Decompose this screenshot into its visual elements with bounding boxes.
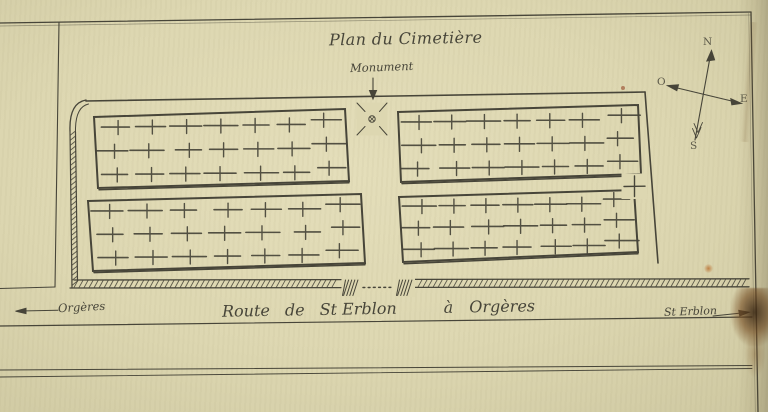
monument-label: Monument bbox=[350, 61, 414, 75]
monument-symbol bbox=[357, 103, 388, 136]
compass-north-label: N bbox=[703, 37, 712, 48]
compass-south-label: S bbox=[690, 141, 697, 152]
road-edge-line bbox=[0, 317, 752, 326]
entrance-gate bbox=[342, 279, 416, 298]
compass-rose bbox=[668, 51, 742, 141]
road-word: à bbox=[444, 300, 454, 316]
road-word: Route bbox=[222, 303, 270, 320]
right-destination-label: St Erblon bbox=[664, 305, 717, 318]
orgeres-arrow bbox=[16, 308, 59, 313]
left-destination-label: Orgères bbox=[58, 301, 106, 315]
compass-east-label: E bbox=[740, 94, 748, 105]
scanned-plan-paper: Plan du Cimetière Monument Route de St E… bbox=[0, 0, 768, 412]
road-lower-lines bbox=[0, 366, 752, 378]
road-word: St Erblon bbox=[319, 301, 396, 318]
left-margin-line bbox=[0, 22, 59, 289]
st-erblon-arrow bbox=[713, 310, 749, 316]
compass-west-label: O bbox=[657, 77, 666, 88]
page-title: Plan du Cimetière bbox=[329, 30, 483, 49]
road-word: Orgères bbox=[469, 298, 535, 315]
chapel-square-symbol bbox=[622, 174, 648, 200]
road-word: de bbox=[285, 302, 305, 318]
